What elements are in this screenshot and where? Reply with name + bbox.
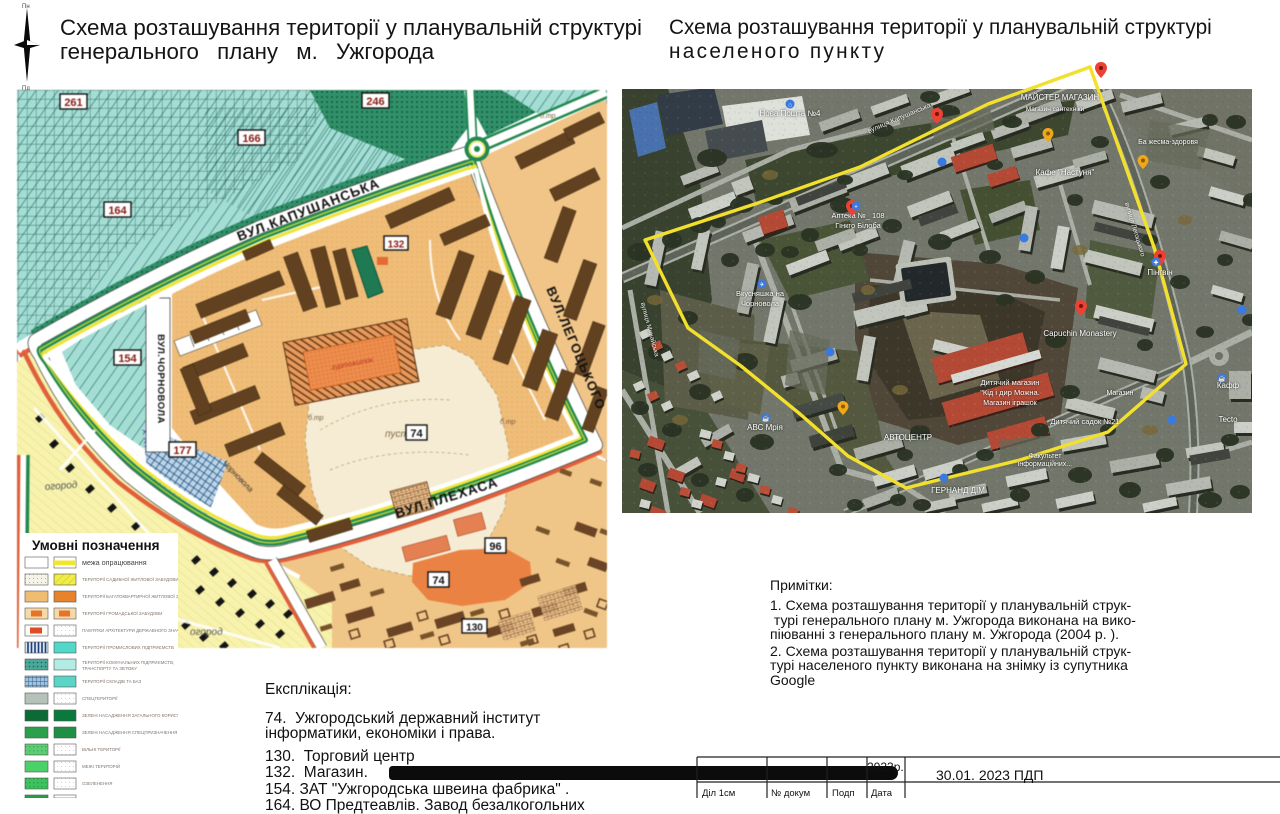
svg-text:Tecto: Tecto (1218, 415, 1238, 424)
svg-text:2023р.: 2023р. (867, 760, 904, 774)
svg-text:Умовні позначення: Умовні позначення (32, 538, 160, 553)
svg-text:177: 177 (173, 445, 191, 457)
svg-text:164: 164 (108, 205, 127, 217)
svg-text:огород: огород (44, 480, 78, 493)
svg-text:огород: огород (190, 627, 223, 638)
svg-text:☕: ☕ (1218, 375, 1226, 383)
svg-text:246: 246 (366, 96, 384, 108)
svg-text:МАЙСТЕР МАГАЗИН: МАЙСТЕР МАГАЗИН (1021, 93, 1100, 102)
svg-text:Чорновола: Чорновола (741, 299, 780, 308)
svg-text:Магазин сантехніки: Магазин сантехніки (1026, 105, 1085, 113)
svg-text:ВІЛЬНІ ТЕРИТОРІЇ: ВІЛЬНІ ТЕРИТОРІЇ (82, 747, 121, 752)
svg-text:ТЕРИТОРІЇ КОМУНАЛЬНИХ ПІДПРИЄМ: ТЕРИТОРІЇ КОМУНАЛЬНИХ ПІДПРИЄМСТВ, (82, 660, 174, 665)
svg-text:Вкусняшка на: Вкусняшка на (736, 289, 785, 298)
svg-text:Capuchin Monastery: Capuchin Monastery (1043, 329, 1116, 338)
svg-text:ОЗЕЛЕНЕННЯ: ОЗЕЛЕНЕННЯ (82, 781, 112, 786)
svg-text:ТРАНСПОРТУ ТА ЗВ'ЯЗКУ: ТРАНСПОРТУ ТА ЗВ'ЯЗКУ (82, 666, 137, 671)
svg-text:74: 74 (432, 575, 445, 587)
svg-text:Пн: Пн (22, 4, 30, 10)
svg-text:ТЕРИТОРІЇ САДИБНОЇ ЖИТЛОВОЇ ЗА: ТЕРИТОРІЇ САДИБНОЇ ЖИТЛОВОЇ ЗАБУДОВИ (82, 577, 178, 582)
svg-text:✚: ✚ (1153, 260, 1158, 267)
svg-text:ТЕРИТОРІЇ СКЛАДІВ ТА БАЗ: ТЕРИТОРІЇ СКЛАДІВ ТА БАЗ (82, 679, 142, 684)
svg-text:Дата: Дата (871, 788, 893, 798)
svg-text:СПЕЦТЕРИТОРІЇ: СПЕЦТЕРИТОРІЇ (82, 696, 118, 701)
svg-text:96: 96 (489, 541, 501, 553)
svg-text:Подп: Подп (832, 788, 855, 798)
svg-text:Аптека №_ 108: Аптека №_ 108 (831, 211, 884, 220)
svg-text:ТЕРИТОРІЇ БАГАТОКВАРТИРНОЇ ЖИТ: ТЕРИТОРІЇ БАГАТОКВАРТИРНОЇ ЖИТЛОВОЇ ЗАБ. (82, 594, 178, 599)
svg-text:АВТОЦЕНТР: АВТОЦЕНТР (884, 433, 932, 442)
svg-text:Гінкго Білоба: Гінкго Білоба (835, 221, 881, 230)
svg-text:ТЕРИТОРІЇ ГРОМАДСЬКОЇ ЗАБУДОВИ: ТЕРИТОРІЇ ГРОМАДСЬКОЇ ЗАБУДОВИ (82, 611, 162, 616)
svg-text:⌂: ⌂ (788, 103, 792, 109)
svg-text:ЗЕЛЕНІ НАСАДЖЕННЯ ЗАГАЛЬНОГО К: ЗЕЛЕНІ НАСАДЖЕННЯ ЗАГАЛЬНОГО КОРИСТ. (82, 713, 178, 718)
svg-text:Дитячий магазин: Дитячий магазин (981, 378, 1040, 387)
svg-text:інформаційних...: інформаційних... (1018, 460, 1072, 468)
svg-text:АВС Мрія: АВС Мрія (747, 423, 783, 432)
svg-text:Кафе "Настуня": Кафе "Настуня" (1036, 168, 1095, 177)
svg-text:б.тр: б.тр (308, 414, 324, 422)
svg-text:"Кід і дир Можна.: "Кід і дир Можна. (980, 388, 1040, 397)
svg-text:МЕЖІ ТЕРИТОРІЙ: МЕЖІ ТЕРИТОРІЙ (82, 764, 120, 769)
svg-text:ВУЛ.ЧОРНОВОЛА: ВУЛ.ЧОРНОВОЛА (155, 334, 166, 424)
svg-text:+: + (854, 205, 858, 211)
svg-text:межа опрацювання: межа опрацювання (82, 558, 147, 567)
svg-text:Діл 1см: Діл 1см (702, 788, 735, 798)
svg-text:✈: ✈ (759, 282, 764, 289)
svg-text:Нова Пошта №4: Нова Пошта №4 (760, 109, 822, 118)
svg-text:Магазин: Магазин (1106, 390, 1133, 397)
svg-text:№ докум: № докум (771, 788, 810, 798)
svg-text:Пінгвін: Пінгвін (1147, 268, 1172, 277)
svg-text:ПАМ'ЯТКИ АРХІТЕКТУРИ ДЕРЖАВНОГ: ПАМ'ЯТКИ АРХІТЕКТУРИ ДЕРЖАВНОГО ЗНАЧ. (82, 628, 178, 633)
svg-text:Факультет: Факультет (1029, 453, 1063, 460)
svg-text:30.01. 2023 ПДП: 30.01. 2023 ПДП (936, 767, 1043, 783)
svg-text:пуст: пуст (385, 429, 409, 440)
svg-text:ЗЕЛЕНІ НАСАДЖЕННЯ СПЕЦПРИЗНАЧЕ: ЗЕЛЕНІ НАСАДЖЕННЯ СПЕЦПРИЗНАЧЕННЯ (82, 730, 177, 735)
svg-text:б.тр: б.тр (500, 418, 516, 426)
svg-text:261: 261 (64, 97, 82, 109)
svg-text:132: 132 (388, 240, 405, 251)
svg-text:б.тр.: б.тр. (540, 112, 558, 120)
svg-text:Магазин іграшок: Магазин іграшок (983, 399, 1037, 407)
svg-text:Дитячий садок №21: Дитячий садок №21 (1050, 417, 1119, 426)
svg-text:ГЕРНАНД ДІМ: ГЕРНАНД ДІМ (931, 486, 985, 495)
svg-text:74: 74 (410, 428, 423, 440)
svg-text:ТЕРИТОРІЇ ПРОМИСЛОВИХ ПІДПРИЄМ: ТЕРИТОРІЇ ПРОМИСЛОВИХ ПІДПРИЄМСТВ (82, 645, 174, 650)
svg-text:154: 154 (118, 353, 137, 365)
svg-text:130: 130 (466, 623, 483, 634)
svg-text:☕: ☕ (762, 415, 770, 423)
svg-text:166: 166 (242, 133, 260, 145)
svg-text:Ба жесма-здоровя: Ба жесма-здоровя (1138, 139, 1198, 146)
